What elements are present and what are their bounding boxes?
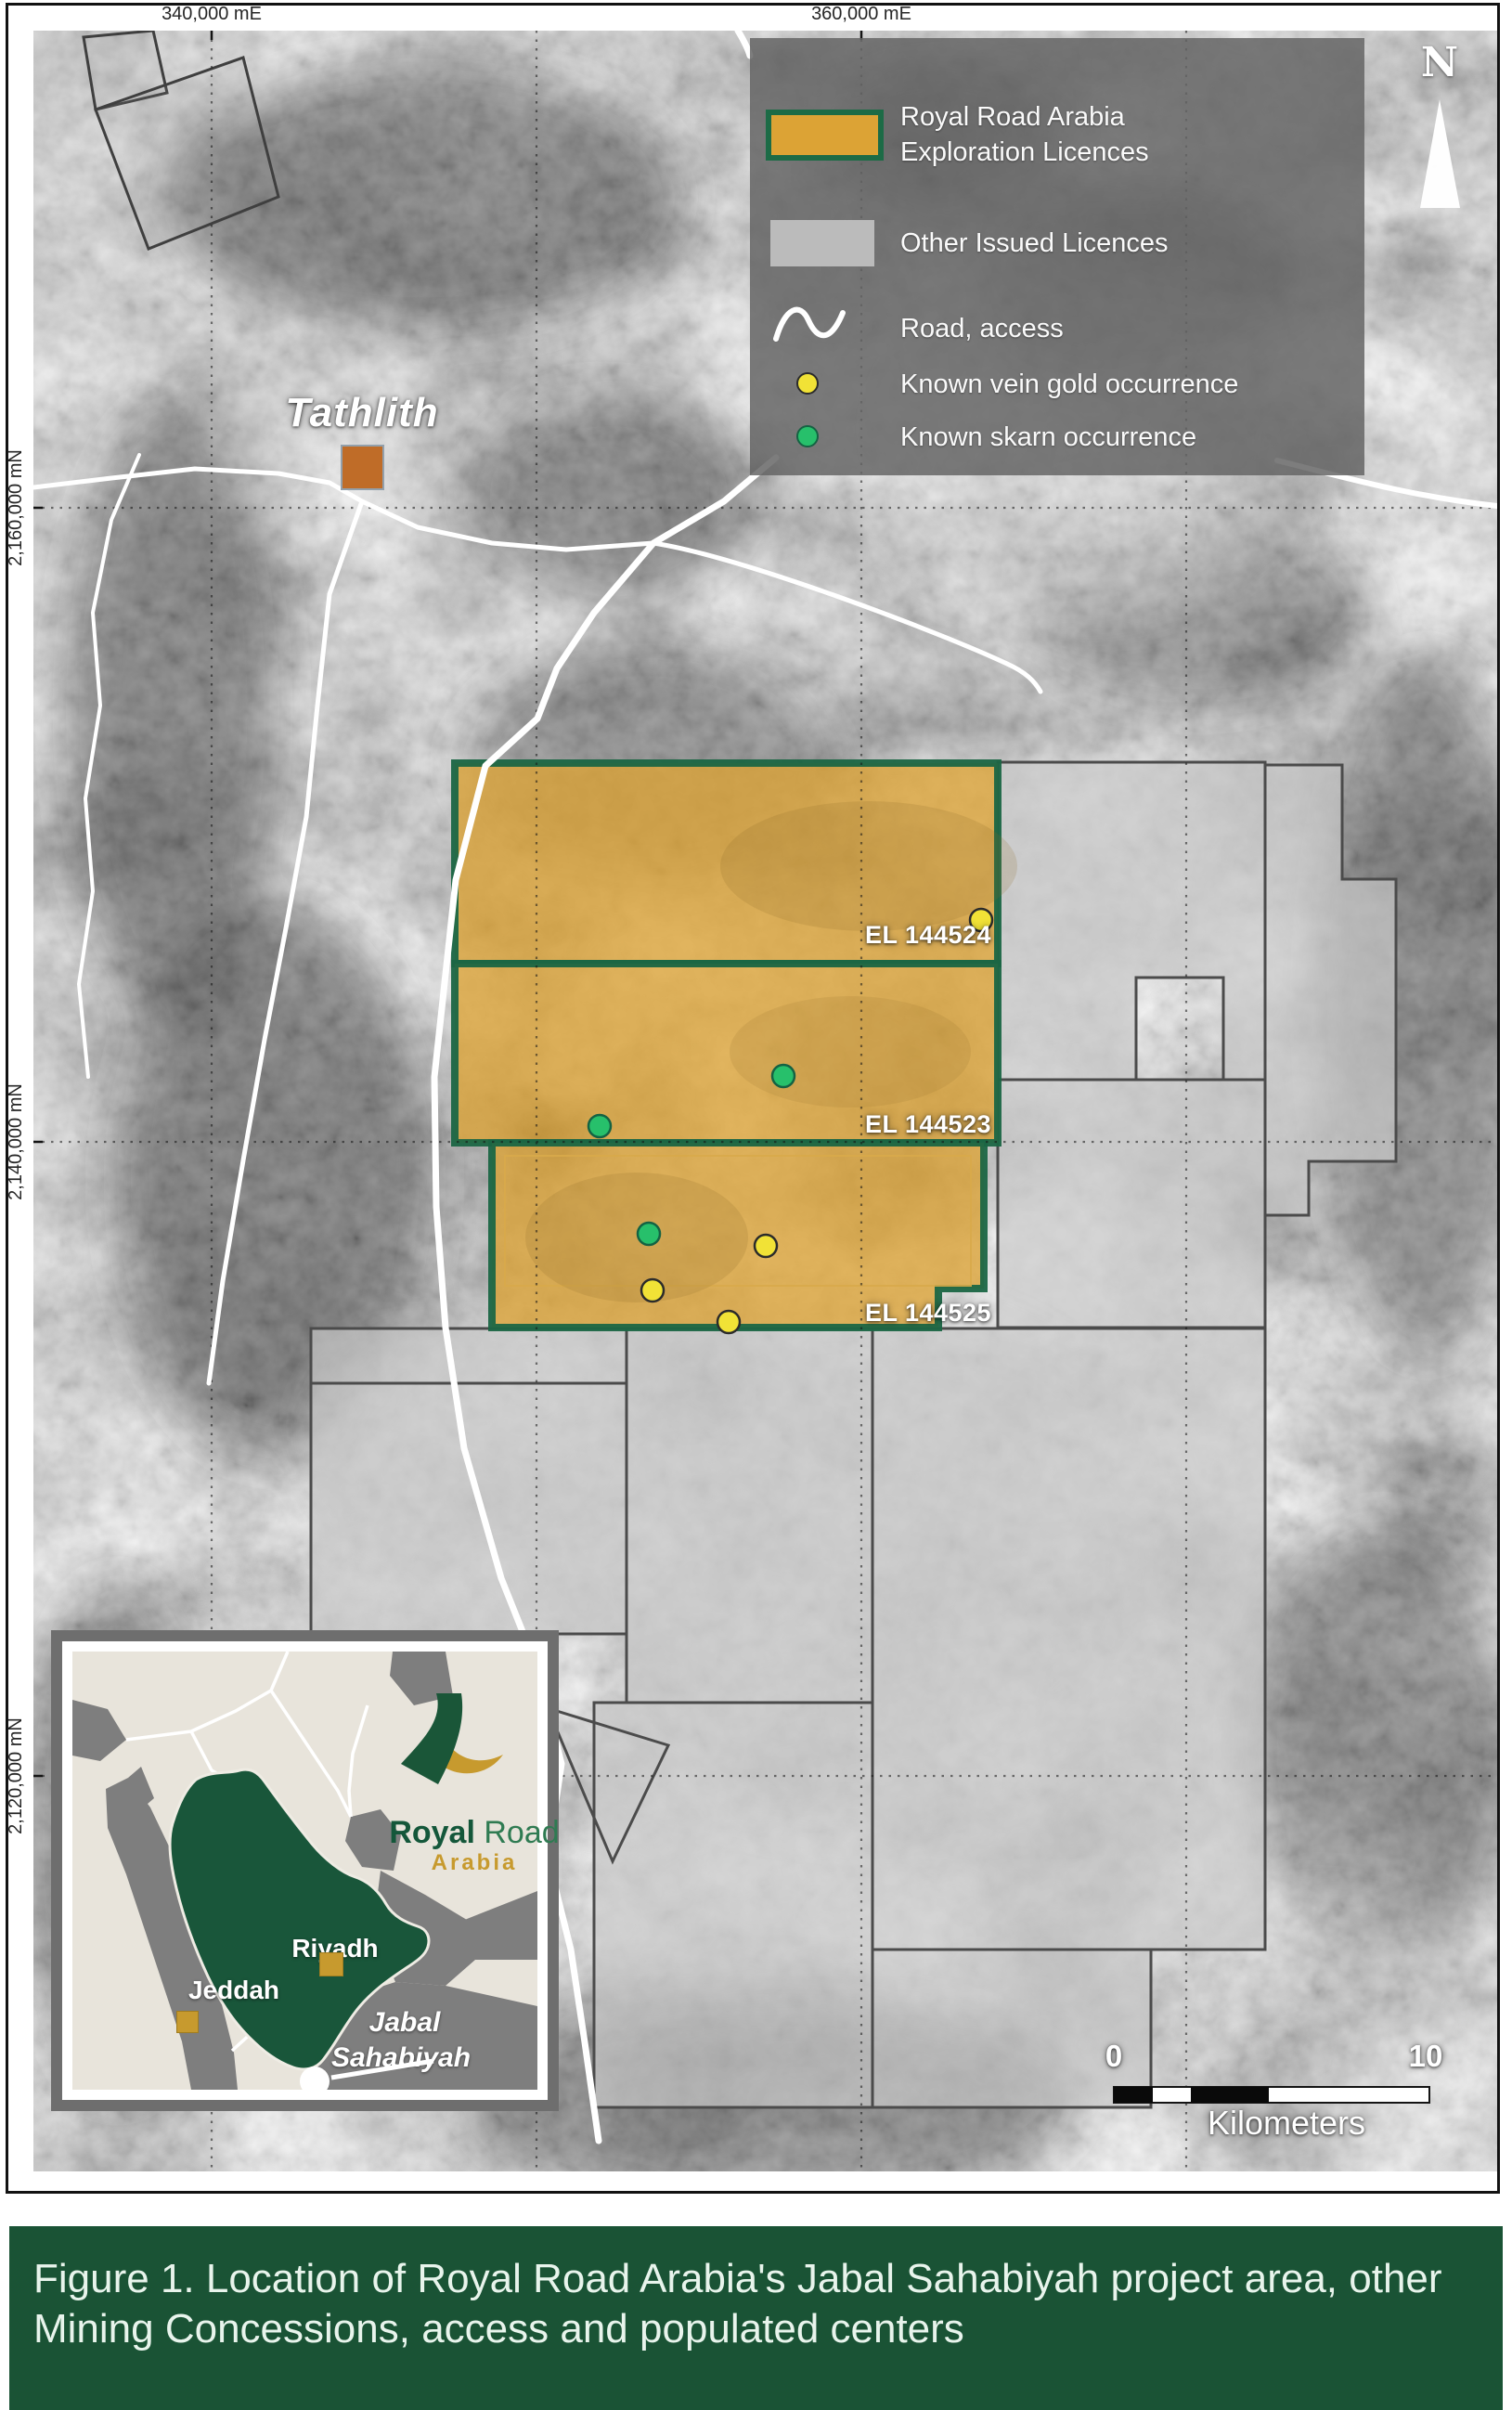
map-frame-border — [6, 3, 1500, 2194]
figure-page: 340,000 mE 360,000 mE 2,160,000 mN 2,140… — [0, 0, 1512, 2410]
figure-caption-text: Figure 1. Location of Royal Road Arabia'… — [33, 2254, 1444, 2353]
figure-caption-box: Figure 1. Location of Royal Road Arabia'… — [9, 2226, 1503, 2410]
